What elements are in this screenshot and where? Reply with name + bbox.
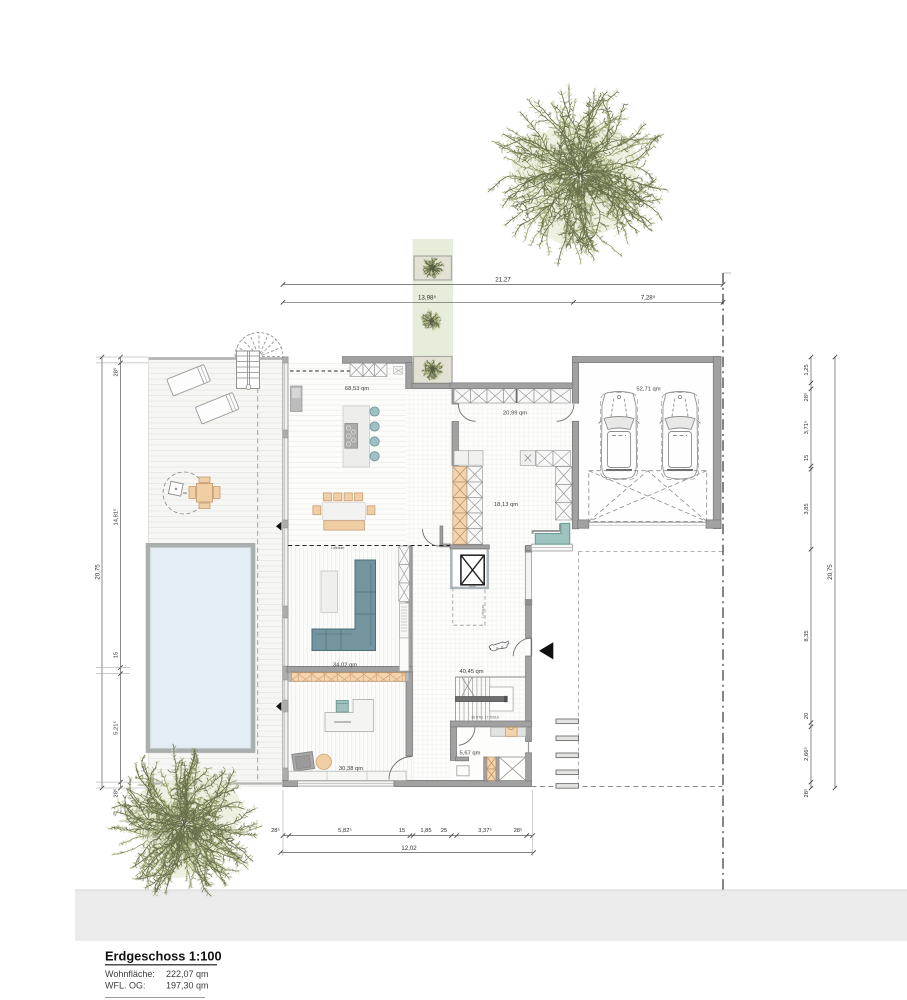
svg-text:28⁵: 28⁵ (514, 827, 523, 834)
svg-text:28⁵: 28⁵ (803, 392, 810, 401)
svg-text:20,75: 20,75 (95, 564, 102, 580)
svg-text:15: 15 (399, 828, 405, 834)
svg-text:Luftraum: Luftraum (481, 604, 485, 618)
svg-text:68,53 qm: 68,53 qm (345, 386, 369, 392)
svg-text:18,13 qm: 18,13 qm (494, 502, 518, 508)
svg-text:28⁵: 28⁵ (113, 367, 120, 376)
svg-text:7,28⁵: 7,28⁵ (641, 294, 656, 301)
svg-text:5,67 qm: 5,67 qm (460, 751, 481, 757)
svg-text:197,30 qm: 197,30 qm (166, 981, 209, 991)
svg-text:90/45: 90/45 (469, 584, 476, 588)
svg-text:222,07 qm: 222,07 qm (166, 969, 209, 979)
svg-text:12,02: 12,02 (401, 845, 417, 852)
svg-text:5,82⁵: 5,82⁵ (338, 827, 352, 834)
svg-text:15: 15 (114, 652, 120, 658)
svg-text:3,71⁵: 3,71⁵ (803, 420, 810, 434)
svg-text:52,71 qm: 52,71 qm (636, 387, 660, 393)
svg-text:21,27: 21,27 (495, 277, 511, 284)
svg-text:1,85: 1,85 (420, 828, 431, 834)
svg-text:Wohnfläche:: Wohnfläche: (105, 969, 155, 979)
svg-text:2,66⁵: 2,66⁵ (803, 747, 810, 761)
svg-text:16 STG. 17,7/26,6: 16 STG. 17,7/26,6 (471, 716, 499, 720)
svg-text:20,75: 20,75 (827, 564, 834, 580)
svg-text:30,38 qm: 30,38 qm (339, 766, 363, 772)
svg-text:20: 20 (804, 713, 810, 719)
svg-text:13,98⁵: 13,98⁵ (418, 294, 436, 301)
svg-text:28⁵: 28⁵ (113, 788, 120, 797)
svg-text:3,85: 3,85 (804, 503, 810, 514)
svg-text:28⁵: 28⁵ (271, 827, 280, 834)
svg-text:25: 25 (441, 828, 447, 834)
svg-text:15: 15 (804, 455, 810, 461)
svg-text:1,25: 1,25 (804, 364, 810, 375)
svg-text:5,21⁵: 5,21⁵ (113, 721, 120, 735)
svg-text:28⁵: 28⁵ (803, 788, 810, 797)
svg-text:8,35: 8,35 (804, 630, 810, 641)
svg-text:20,99 qm: 20,99 qm (503, 411, 527, 417)
svg-text:Luftraum: Luftraum (331, 546, 345, 550)
svg-text:3,37⁵: 3,37⁵ (478, 827, 492, 834)
svg-text:40,45 qm: 40,45 qm (459, 669, 483, 675)
svg-text:14,81⁵: 14,81⁵ (113, 508, 120, 526)
svg-text:Erdgeschoss 1:100: Erdgeschoss 1:100 (105, 949, 222, 964)
svg-text:34,02 qm: 34,02 qm (333, 663, 357, 669)
svg-text:WFL. OG:: WFL. OG: (105, 981, 146, 991)
